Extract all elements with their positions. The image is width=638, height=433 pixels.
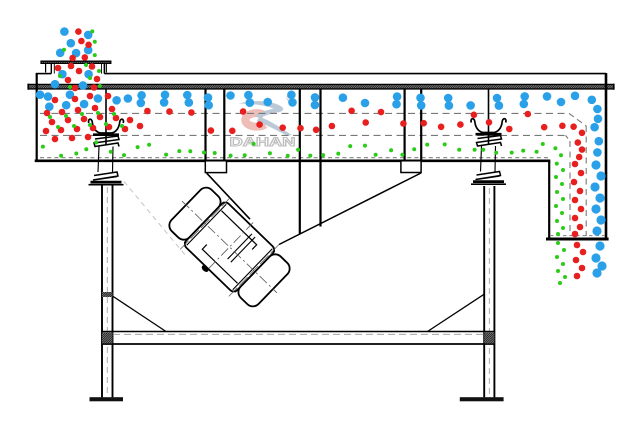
svg-text:DAHAN: DAHAN: [230, 135, 296, 149]
